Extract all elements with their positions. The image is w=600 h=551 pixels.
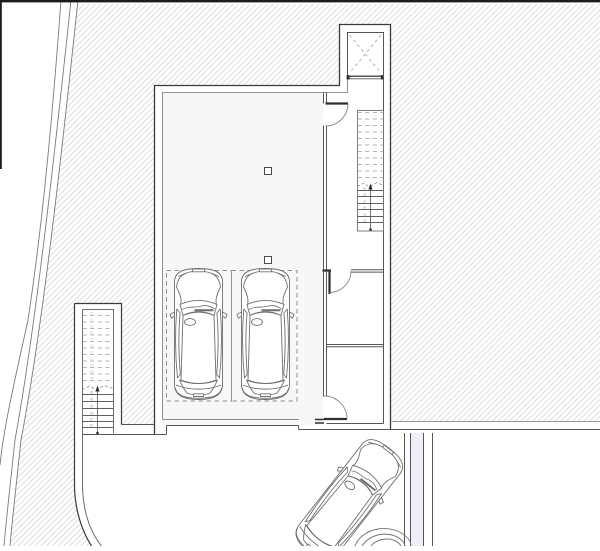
svg-text:05: 05 bbox=[363, 192, 367, 196]
svg-text:03: 03 bbox=[90, 412, 94, 416]
svg-text:04: 04 bbox=[90, 405, 94, 409]
svg-text:11: 11 bbox=[90, 357, 94, 361]
svg-text:06: 06 bbox=[90, 391, 94, 395]
svg-text:14: 14 bbox=[90, 338, 94, 342]
svg-text:04: 04 bbox=[363, 199, 367, 203]
svg-text:15: 15 bbox=[90, 331, 94, 335]
svg-text:03: 03 bbox=[363, 205, 367, 209]
svg-text:09: 09 bbox=[90, 370, 94, 374]
svg-text:17: 17 bbox=[90, 318, 94, 322]
svg-text:01: 01 bbox=[363, 218, 367, 222]
svg-text:01: 01 bbox=[90, 424, 94, 428]
svg-text:12: 12 bbox=[90, 351, 94, 355]
svg-text:02: 02 bbox=[363, 212, 367, 216]
svg-text:16: 16 bbox=[90, 325, 94, 329]
svg-text:13: 13 bbox=[90, 344, 94, 348]
svg-text:10: 10 bbox=[90, 364, 94, 368]
svg-text:05: 05 bbox=[90, 398, 94, 402]
svg-text:18: 18 bbox=[90, 312, 94, 316]
svg-text:08: 08 bbox=[90, 377, 94, 381]
svg-text:02: 02 bbox=[90, 418, 94, 422]
svg-text:06: 06 bbox=[363, 186, 367, 190]
